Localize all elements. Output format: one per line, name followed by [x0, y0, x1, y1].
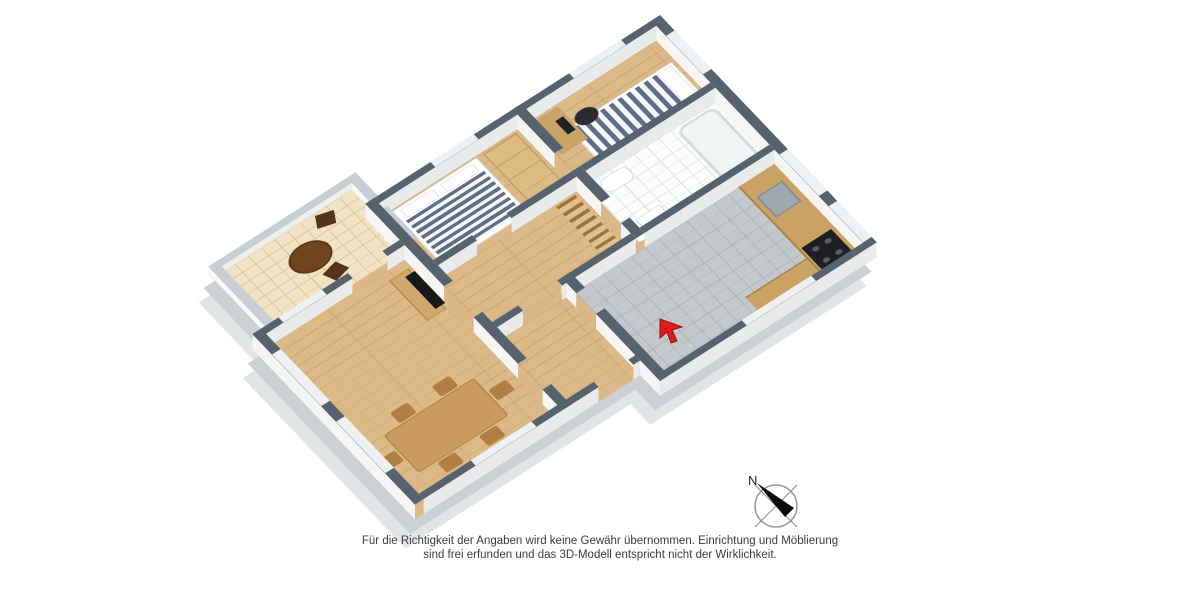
- compass-north-label: N: [748, 473, 757, 488]
- compass-rose: N: [742, 470, 806, 534]
- page: N Für die Richtigkeit der Angaben wird k…: [0, 0, 1200, 600]
- disclaimer-line-2: sind frei erfunden und das 3D-Modell ent…: [0, 548, 1200, 562]
- entrance-arrow-icon: [656, 316, 686, 346]
- disclaimer-text: Für die Richtigkeit der Angaben wird kei…: [0, 534, 1200, 562]
- disclaimer-line-1: Für die Richtigkeit der Angaben wird kei…: [0, 534, 1200, 548]
